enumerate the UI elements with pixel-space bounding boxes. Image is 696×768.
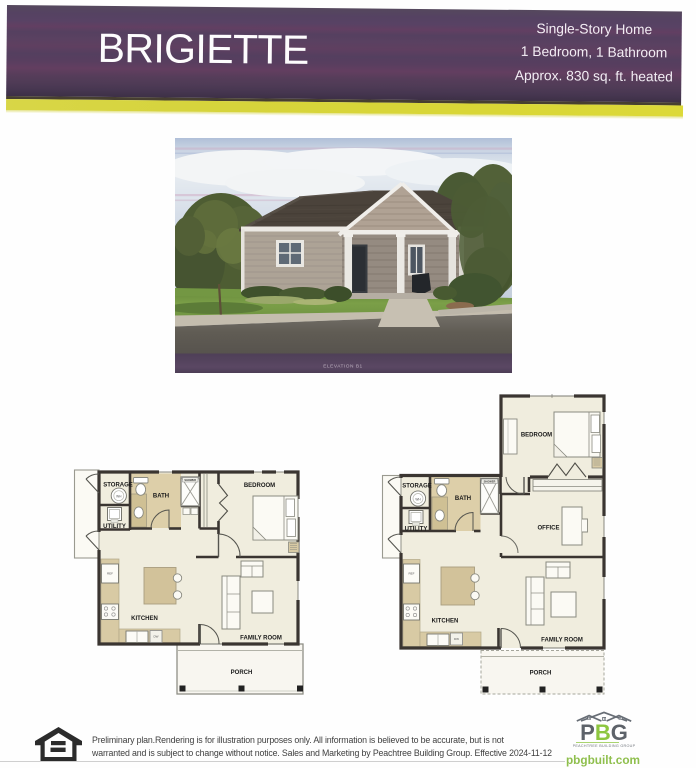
svg-text:SHOWER: SHOWER	[484, 480, 496, 484]
svg-text:BATH: BATH	[455, 496, 471, 502]
svg-text:UTILITY: UTILITY	[405, 527, 428, 533]
svg-text:REF: REF	[409, 572, 415, 576]
svg-text:KITCHEN: KITCHEN	[131, 616, 158, 622]
svg-text:SHOWER: SHOWER	[184, 478, 196, 482]
svg-text:FAMILY ROOM: FAMILY ROOM	[240, 636, 282, 642]
svg-text:ELEVATION B1: ELEVATION B1	[323, 364, 362, 370]
svg-text:STORAGE: STORAGE	[103, 483, 133, 489]
svg-text:WH: WH	[415, 497, 421, 501]
svg-text:FAMILY ROOM: FAMILY ROOM	[541, 638, 583, 644]
svg-text:BEDROOM: BEDROOM	[521, 433, 552, 439]
svg-text:REF: REF	[107, 572, 113, 576]
svg-text:PBG: PBG	[580, 720, 628, 745]
svg-text:BEDROOM: BEDROOM	[244, 483, 275, 489]
svg-text:PORCH: PORCH	[530, 671, 552, 677]
svg-text:UTILITY: UTILITY	[103, 524, 126, 530]
svg-text:DW: DW	[154, 635, 159, 639]
svg-text:OFFICE: OFFICE	[538, 526, 560, 532]
svg-text:KITCHEN: KITCHEN	[432, 619, 459, 625]
svg-text:PORCH: PORCH	[231, 670, 253, 676]
svg-text:WH: WH	[116, 495, 122, 499]
svg-text:BATH: BATH	[153, 494, 169, 500]
svg-text:DW: DW	[454, 637, 459, 641]
svg-text:PEACHTREE BUILDING GROUP: PEACHTREE BUILDING GROUP	[573, 744, 636, 748]
svg-text:STORAGE: STORAGE	[402, 484, 432, 490]
